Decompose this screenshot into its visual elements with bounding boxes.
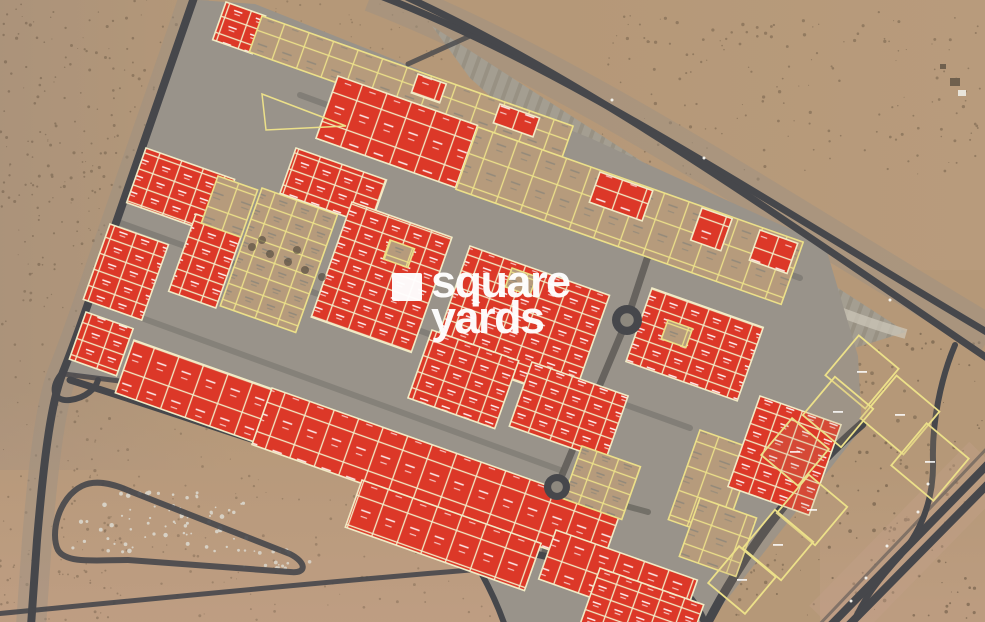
vehicle [850,600,853,603]
vehicle [865,577,868,580]
plot-label-mark [833,411,843,413]
plot-label-mark [857,371,867,373]
tree-shadow [266,250,274,258]
tree-shadow [293,246,301,254]
tree-shadow [248,243,256,251]
plot-label-mark [895,414,905,416]
plot-label-mark [807,509,817,511]
structure [950,78,960,86]
vehicle [611,99,614,102]
roundabout-center [620,313,634,327]
plot-label-mark [790,451,800,453]
map-canvas [0,0,985,622]
plot-label-mark [737,579,747,581]
tree-shadow [284,258,292,266]
vehicle [886,545,889,548]
satellite-map: square yards [0,0,985,622]
tree-shadow [318,273,326,281]
structure [958,90,966,96]
vehicle [703,157,706,160]
tree-shadow [258,236,266,244]
vehicle [927,483,930,486]
vehicle [889,299,892,302]
plot-label-mark [925,461,935,463]
plot-label-mark [773,544,783,546]
roundabout-center [551,481,563,493]
vehicle [917,511,920,514]
structure [940,64,946,69]
tree-shadow [301,266,309,274]
